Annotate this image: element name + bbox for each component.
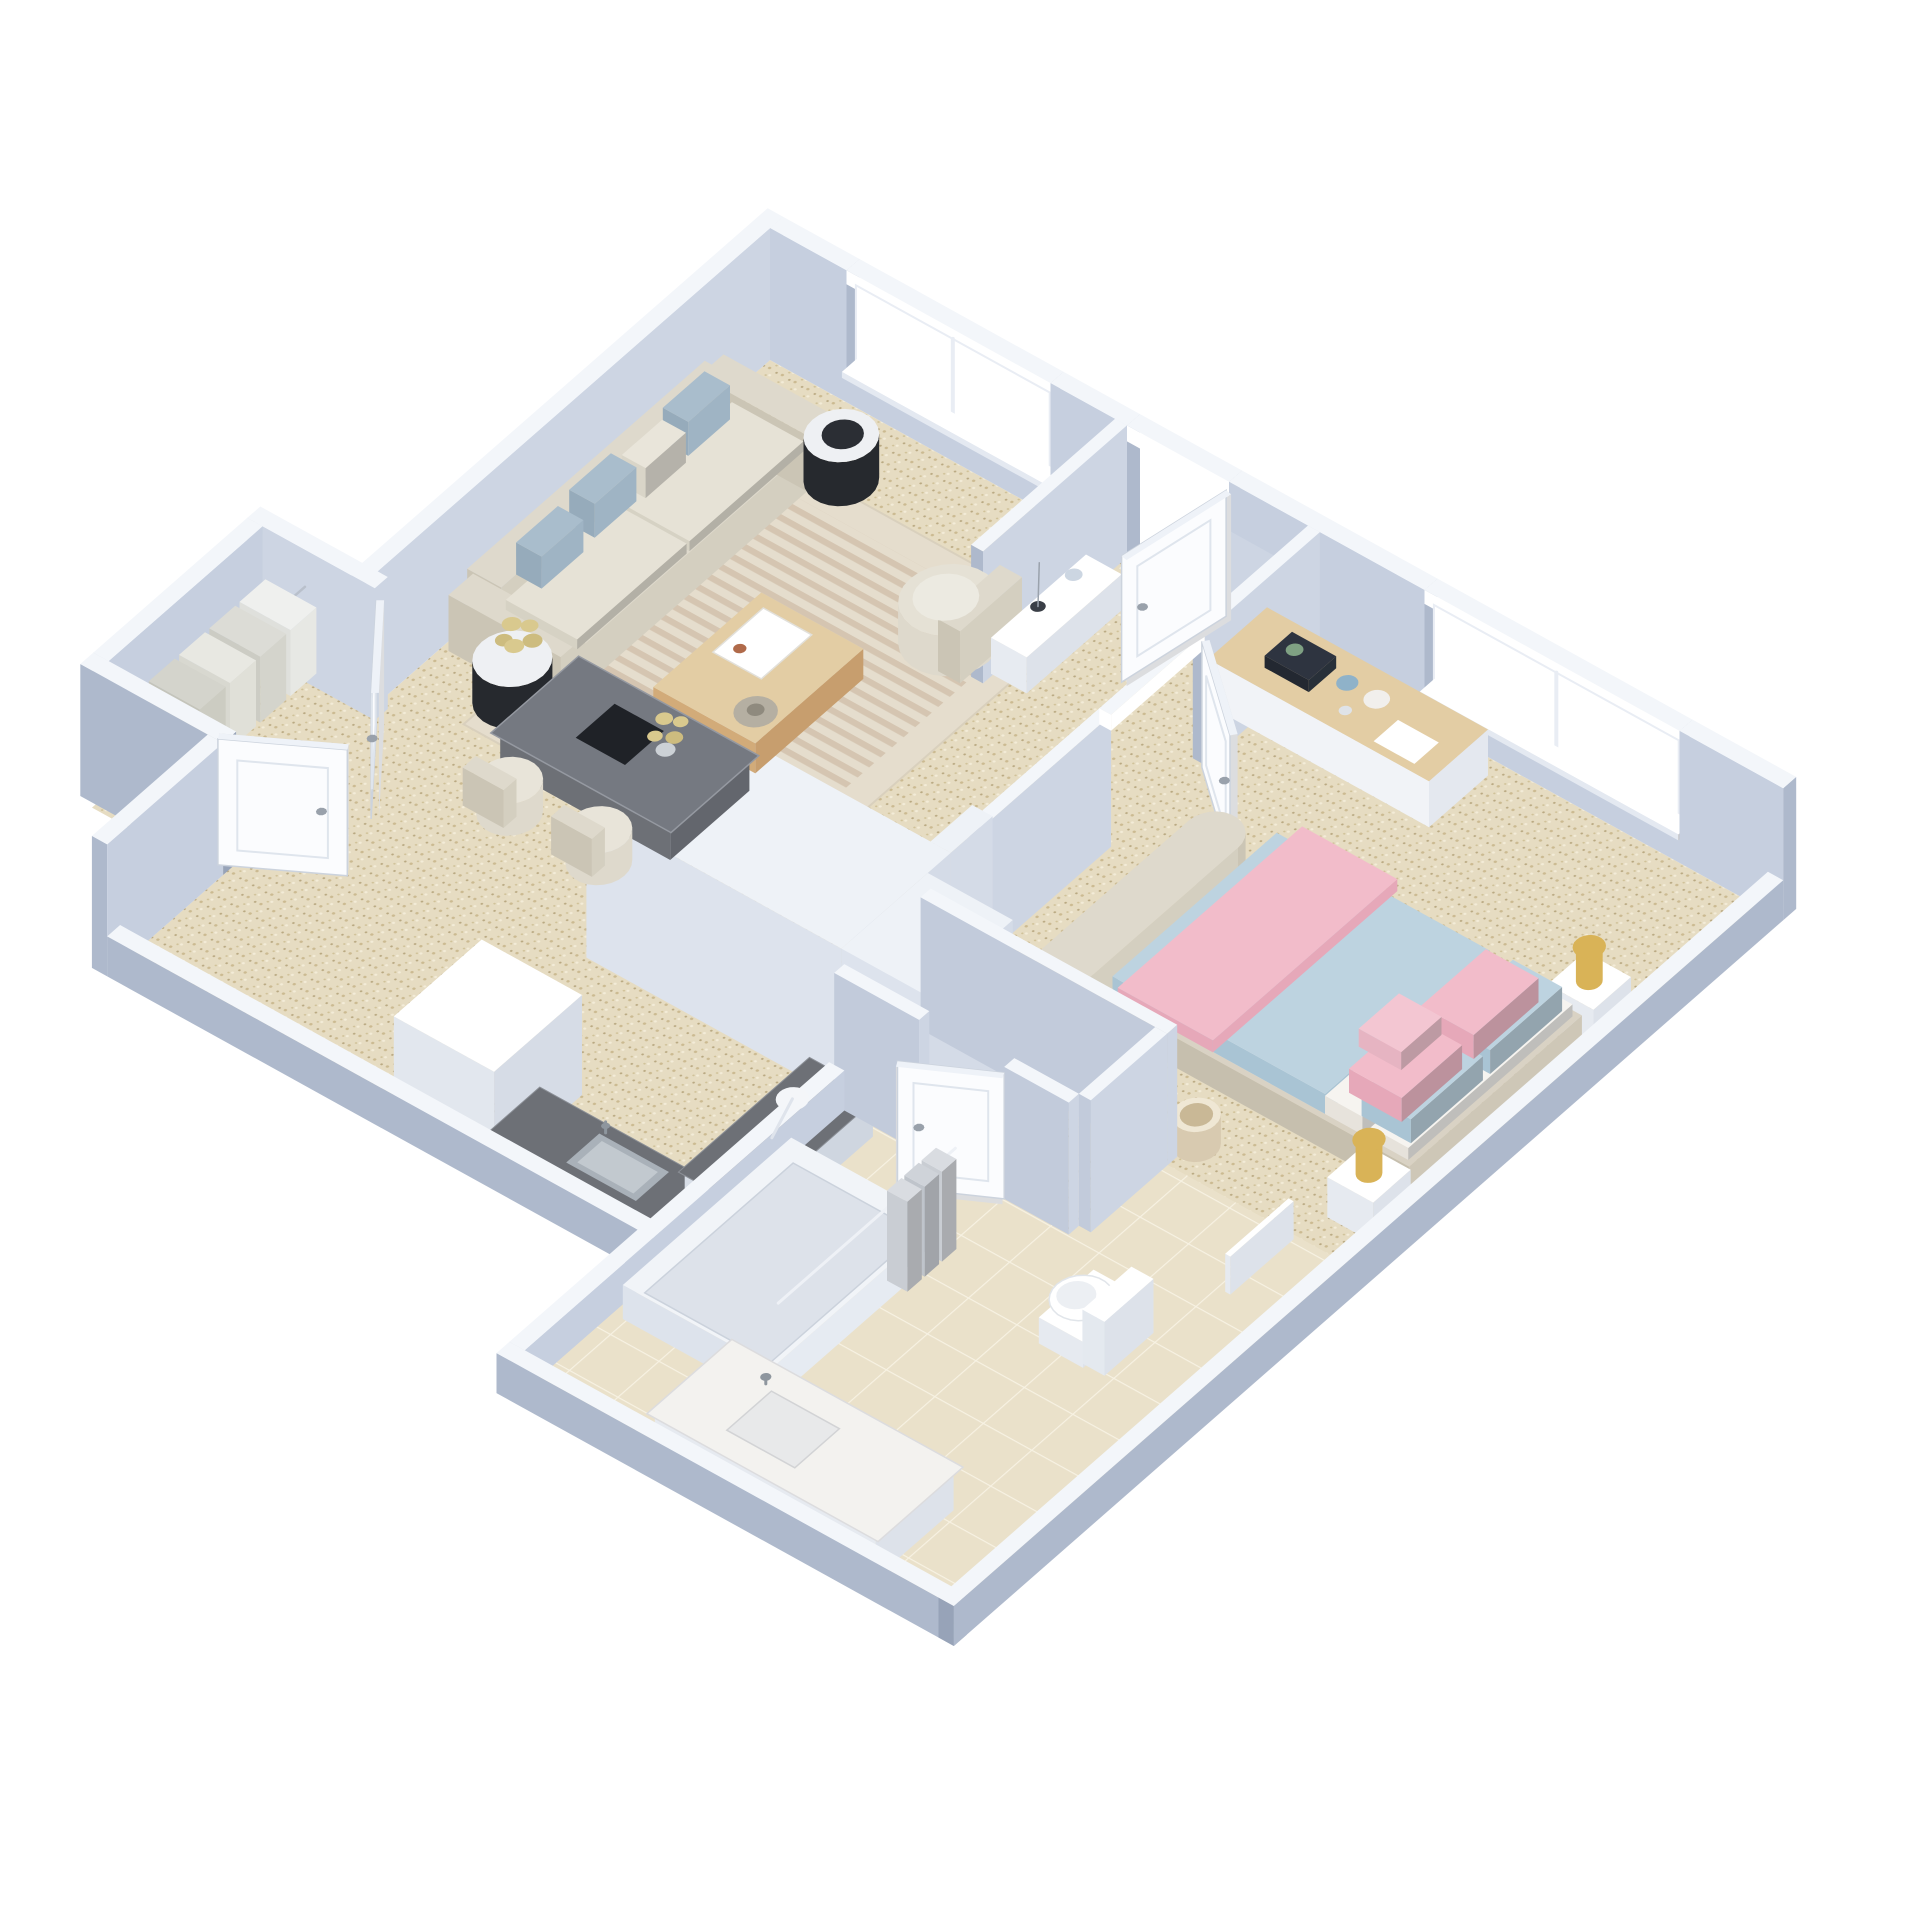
shower-curtain-3 — [887, 1178, 922, 1292]
closet-door-right — [218, 733, 349, 875]
isometric-floor-plan-render — [0, 0, 1920, 1920]
floor-plan-page — [0, 0, 1920, 1920]
